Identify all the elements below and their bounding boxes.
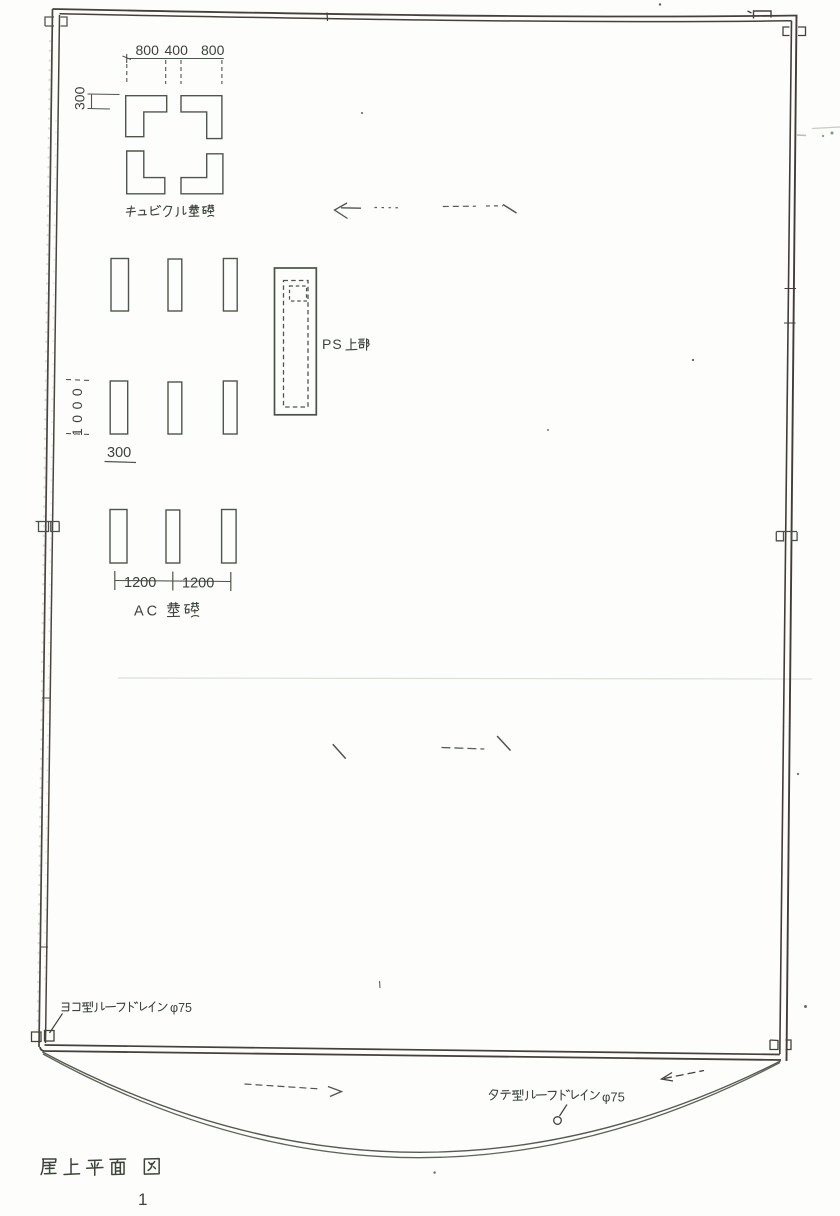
svg-text:φ75: φ75	[170, 1001, 192, 1015]
svg-text:300: 300	[72, 86, 88, 110]
svg-text:800: 800	[201, 42, 225, 58]
svg-text:1: 1	[138, 1190, 147, 1209]
svg-text:1200: 1200	[182, 576, 214, 592]
svg-text:1000: 1000	[69, 383, 85, 436]
svg-text:300: 300	[107, 445, 131, 461]
svg-text:φ75: φ75	[602, 1090, 625, 1105]
svg-text:400: 400	[165, 42, 189, 58]
svg-text:AC: AC	[134, 604, 160, 620]
svg-text:PS: PS	[322, 336, 343, 352]
svg-text:800: 800	[136, 42, 160, 58]
svg-text:1200: 1200	[124, 575, 156, 591]
